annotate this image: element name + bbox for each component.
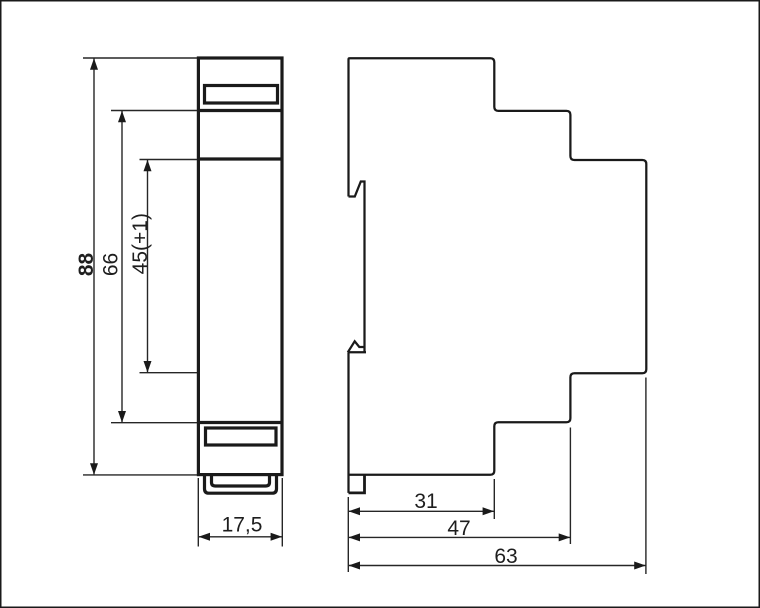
svg-text:31: 31 <box>414 490 437 513</box>
svg-text:47: 47 <box>447 517 470 540</box>
svg-text:45(+1): 45(+1) <box>129 213 152 274</box>
svg-text:66: 66 <box>100 253 123 276</box>
svg-text:17,5: 17,5 <box>222 514 263 537</box>
svg-text:88: 88 <box>75 253 98 277</box>
svg-text:63: 63 <box>494 545 517 568</box>
